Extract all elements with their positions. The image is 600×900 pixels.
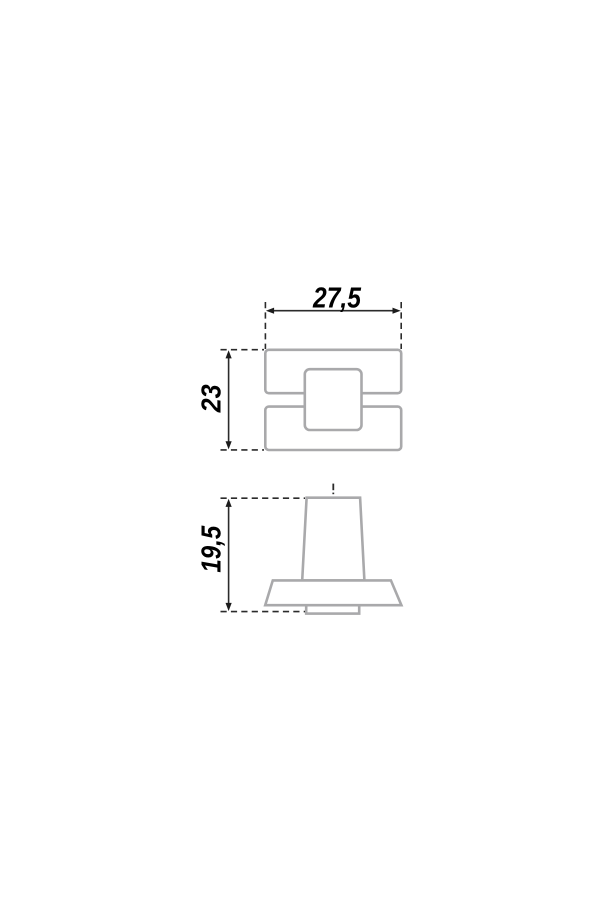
svg-text:23: 23 bbox=[195, 384, 227, 413]
svg-text:19,5: 19,5 bbox=[195, 525, 227, 572]
svg-text:27,5: 27,5 bbox=[312, 282, 362, 314]
